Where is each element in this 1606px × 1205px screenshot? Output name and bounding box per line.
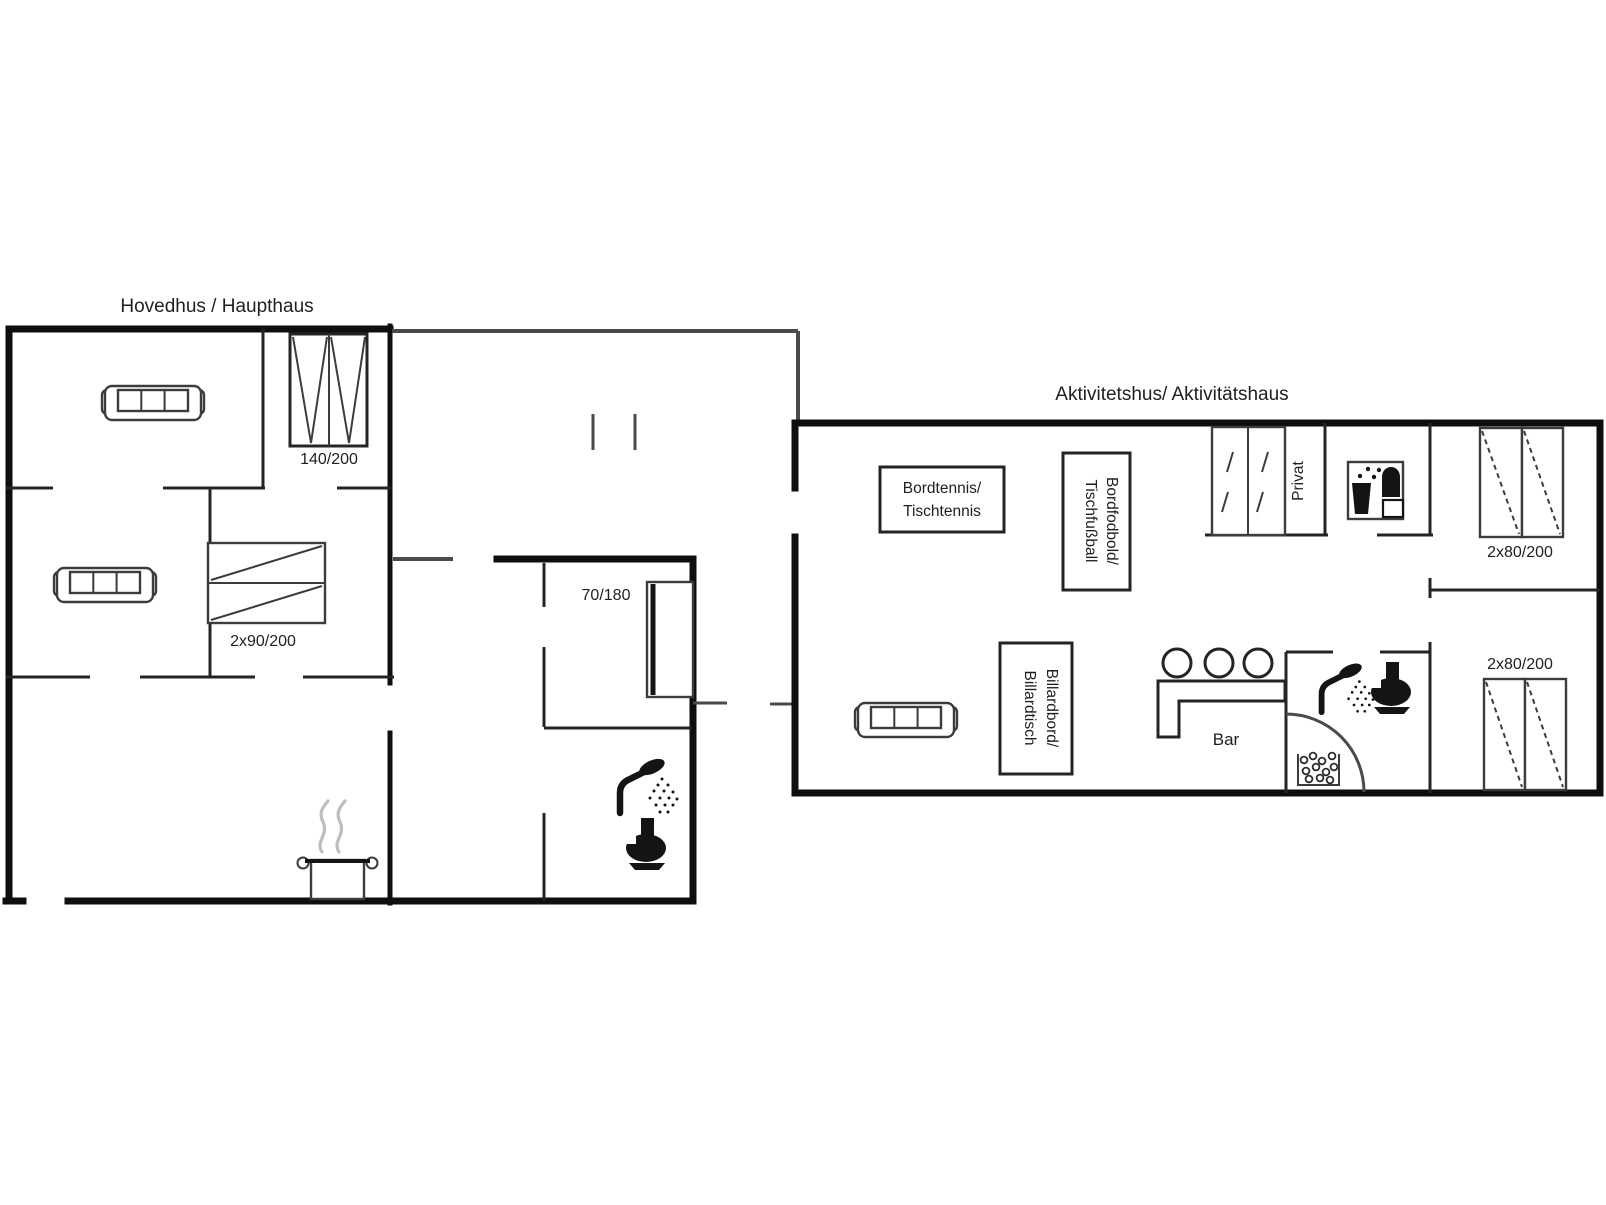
bed-label-top: 2x80/200 bbox=[1487, 544, 1553, 561]
bunk-bed-label: 2x90/200 bbox=[230, 633, 296, 650]
foosball-label-2: Tischfußball bbox=[1082, 480, 1099, 563]
table-tennis-label-1: Bordtennis/ bbox=[903, 480, 982, 497]
single-bed-icon bbox=[647, 582, 693, 697]
bar-stool bbox=[1244, 649, 1272, 677]
washing-machine-icon bbox=[1348, 462, 1403, 519]
foosball-label-1: Bordfodbold/ bbox=[1103, 477, 1120, 566]
courtyard-connection bbox=[392, 331, 798, 704]
stove-pot-icon bbox=[298, 801, 378, 899]
passage-wall-ticks bbox=[693, 703, 797, 704]
bunk-bed-icon bbox=[208, 543, 325, 623]
double-bed-icon bbox=[1484, 679, 1566, 790]
bar-label: Bar bbox=[1213, 730, 1240, 749]
sofa-icon bbox=[54, 568, 156, 602]
main-house-title: Hovedhus / Haupthaus bbox=[120, 296, 313, 317]
floor-plan-page: Hovedhus / Haupthaus 140/200 2x90/200 bbox=[0, 0, 1606, 1205]
privat-label: Privat bbox=[1290, 460, 1307, 500]
bed-label-bottom: 2x80/200 bbox=[1487, 656, 1553, 673]
wardrobe-icon bbox=[1212, 427, 1285, 535]
toilet-icon bbox=[1370, 662, 1411, 714]
shower-icon bbox=[620, 756, 679, 814]
table-tennis-table bbox=[880, 467, 1004, 532]
table-tennis-label-2: Tischtennis bbox=[903, 503, 981, 520]
shower-icon bbox=[1322, 661, 1375, 713]
billiard-label-1: Billardbord/ bbox=[1043, 669, 1060, 748]
toilet-icon bbox=[625, 818, 666, 870]
courtyard-opening-marks bbox=[593, 414, 635, 450]
activity-house: Aktivitetshus/ Aktivitätshaus Bordtennis… bbox=[795, 384, 1600, 793]
single-bed-label: 70/180 bbox=[582, 587, 631, 604]
wardrobe-label: 140/200 bbox=[300, 451, 358, 468]
bar-counter bbox=[1158, 649, 1285, 737]
sofa-icon bbox=[855, 703, 957, 737]
courtyard-boundary bbox=[392, 331, 798, 420]
double-bed-icon bbox=[1480, 428, 1563, 537]
wardrobe-icon bbox=[290, 334, 367, 446]
activity-house-title: Aktivitetshus/ Aktivitätshaus bbox=[1055, 384, 1288, 405]
whirlpool-icon bbox=[1298, 753, 1339, 785]
bar-stool bbox=[1163, 649, 1191, 677]
floor-plan-canvas: Hovedhus / Haupthaus 140/200 2x90/200 bbox=[0, 0, 1606, 1205]
sofa-icon bbox=[102, 386, 204, 420]
bar-stool bbox=[1205, 649, 1233, 677]
main-house: Hovedhus / Haupthaus 140/200 2x90/200 bbox=[6, 296, 693, 903]
billiard-label-2: Billardtisch bbox=[1021, 671, 1038, 746]
